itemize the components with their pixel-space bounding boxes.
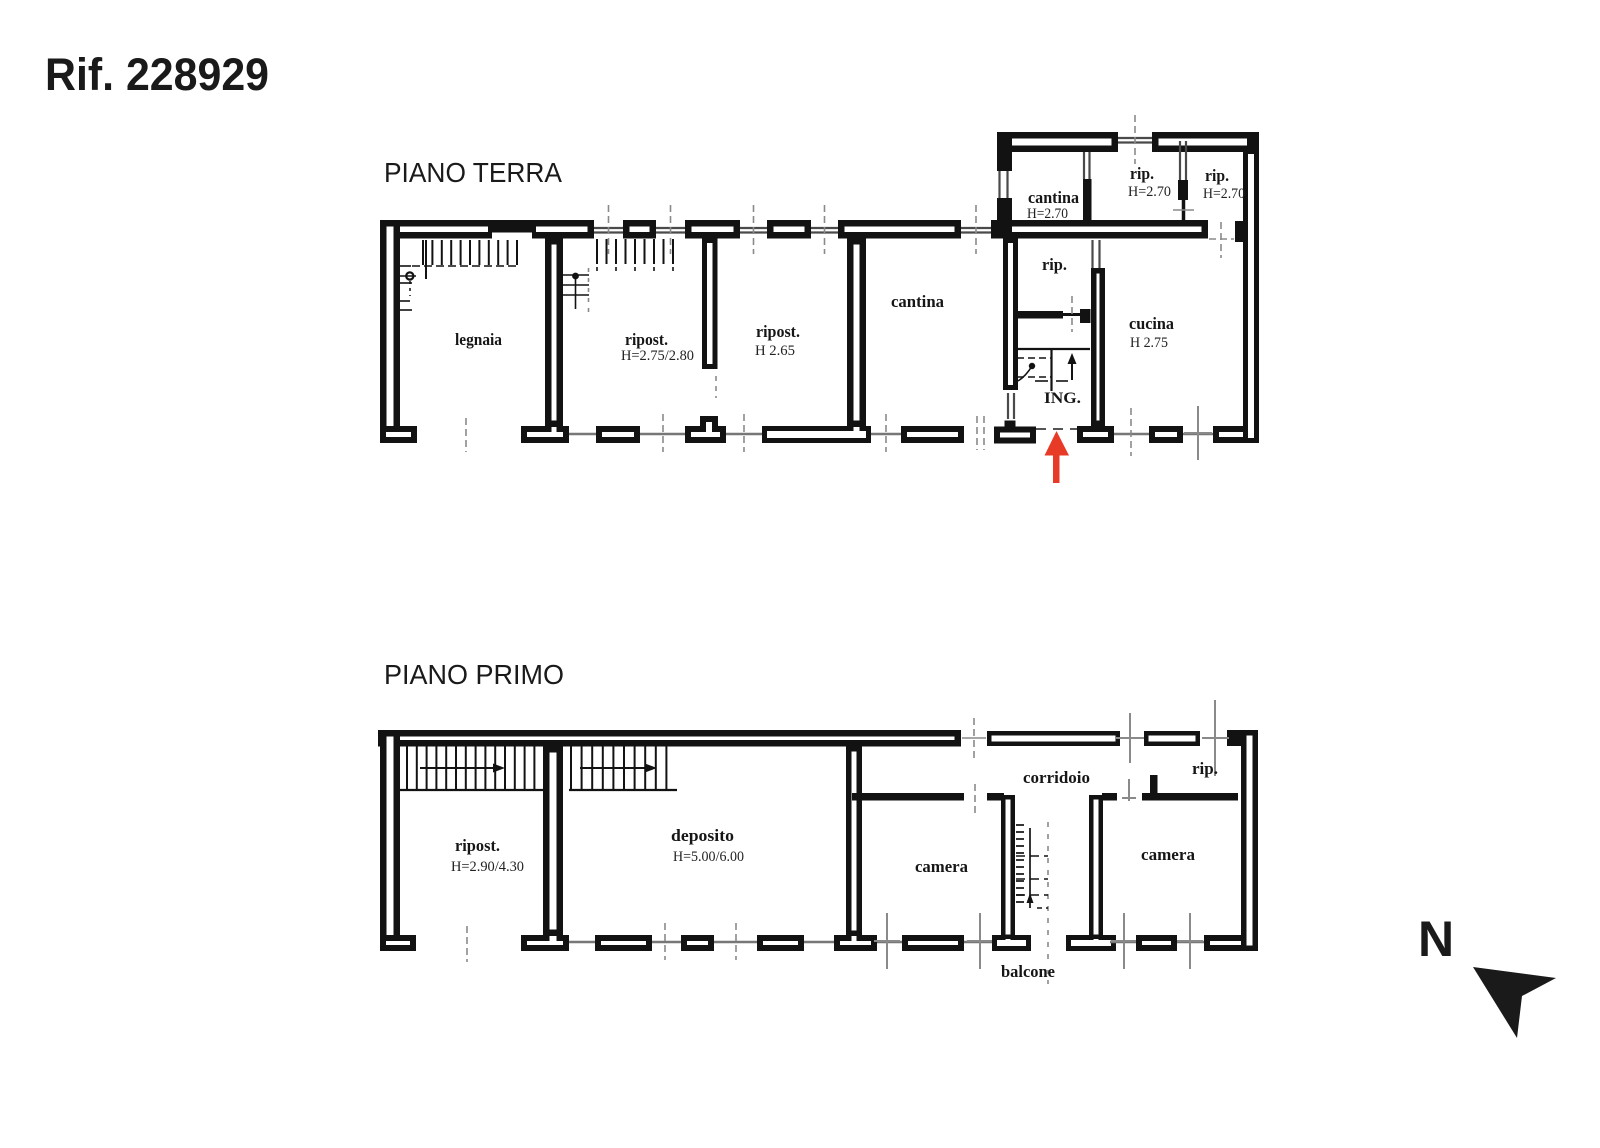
svg-text:H=5.00/6.00: H=5.00/6.00 (673, 849, 744, 865)
svg-text:H 2.75: H 2.75 (1130, 335, 1168, 351)
svg-text:rip.: rip. (1130, 164, 1154, 183)
svg-text:PIANO PRIMO: PIANO PRIMO (384, 659, 564, 690)
svg-text:PIANO TERRA: PIANO TERRA (384, 157, 562, 188)
svg-text:cantina: cantina (1028, 188, 1079, 207)
svg-text:ripost.: ripost. (455, 836, 500, 855)
svg-text:N: N (1418, 911, 1454, 967)
svg-text:H=2.90/4.30: H=2.90/4.30 (451, 859, 524, 875)
svg-text:deposito: deposito (671, 826, 734, 845)
svg-text:cantina: cantina (891, 292, 944, 311)
svg-text:H=2.70: H=2.70 (1128, 184, 1171, 200)
svg-text:camera: camera (915, 857, 968, 876)
svg-text:H=2.75/2.80: H=2.75/2.80 (621, 348, 694, 364)
svg-text:camera: camera (1141, 845, 1195, 864)
svg-text:Rif. 228929: Rif. 228929 (45, 49, 269, 100)
svg-text:ripost.: ripost. (756, 322, 800, 341)
svg-text:H=2.70: H=2.70 (1203, 186, 1245, 202)
svg-text:rip.: rip. (1042, 255, 1067, 274)
svg-text:corridoio: corridoio (1023, 768, 1090, 787)
svg-text:ING.: ING. (1044, 390, 1081, 407)
svg-text:ripost.: ripost. (625, 330, 668, 349)
svg-text:balcone: balcone (1001, 962, 1055, 981)
svg-text:cucina: cucina (1129, 314, 1174, 333)
svg-text:H 2.65: H 2.65 (755, 343, 795, 359)
svg-text:legnaia: legnaia (455, 330, 502, 349)
svg-text:rip.: rip. (1205, 166, 1229, 185)
svg-text:rip.: rip. (1192, 759, 1218, 778)
svg-text:H=2.70: H=2.70 (1027, 206, 1068, 222)
